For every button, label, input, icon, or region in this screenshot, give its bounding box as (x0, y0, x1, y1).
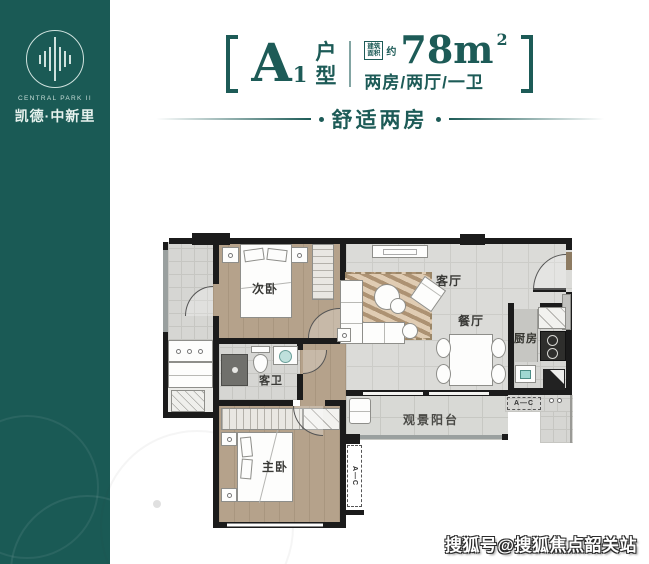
coffee-table (390, 298, 406, 314)
ac-outdoor-box: A—C (507, 397, 541, 410)
area-note: 建筑 面积 (364, 41, 383, 60)
wardrobe (221, 408, 303, 430)
wardrobe (312, 244, 334, 300)
room-label-balcony: 观景阳台 (396, 411, 466, 428)
area-approx: 约 (386, 43, 396, 58)
basin-icon (279, 350, 292, 363)
wall (213, 400, 293, 406)
washer (171, 390, 205, 412)
spec-text: 两房/两厅/一卫 (364, 68, 507, 93)
unit-number: 1 (293, 64, 308, 85)
kitchen-sink (538, 307, 566, 329)
room-label-dining: 餐厅 (455, 312, 487, 329)
wall (340, 434, 360, 444)
wall (460, 234, 485, 245)
room-label-living: 客厅 (433, 272, 465, 289)
wall (163, 412, 219, 418)
tagline-dot (436, 117, 441, 122)
washing-machine (515, 365, 536, 383)
wall (213, 412, 219, 528)
sliding-door-panel (363, 392, 423, 395)
appliance-door-icon (520, 370, 531, 379)
sliding-door-panel (429, 392, 489, 395)
area-exponent: 2 (496, 32, 507, 48)
unit-word-bottom: 型 (315, 65, 336, 89)
entry-door-frame (566, 252, 572, 270)
dining-chair (491, 364, 506, 384)
tagline-line-left (156, 118, 311, 120)
dining-chair (436, 338, 451, 358)
wall (213, 338, 346, 344)
wall (163, 242, 168, 250)
poster-page: CENTRAL PARK II 凯德·中新里 A 1 户 型 建筑 面积 约 7… (0, 0, 649, 564)
wall (502, 434, 508, 440)
sofa (362, 322, 405, 344)
nightstand (221, 432, 237, 446)
wall (192, 233, 230, 245)
unit-word-top: 户 (315, 41, 336, 65)
bracket-left-icon (226, 35, 238, 93)
stove (540, 331, 566, 361)
unit-letter: A (251, 42, 291, 86)
room-label-bedroom2: 次卧 (237, 280, 293, 297)
bath-sink (273, 346, 298, 365)
shower (221, 354, 248, 386)
area-group: 建筑 面积 约 78m 2 两房/两厅/一卫 (364, 34, 507, 93)
window-rail (163, 242, 168, 340)
header-divider (349, 41, 351, 87)
floor-ac-platform (540, 412, 573, 443)
balcony-rail (346, 435, 508, 439)
bracket-right-icon (521, 35, 533, 93)
tagline: 舒适两房 (332, 104, 428, 134)
side-table (337, 328, 351, 342)
laundry-cabinet (168, 362, 213, 388)
window (227, 523, 323, 527)
logo-en-text: CENTRAL PARK II (0, 95, 110, 102)
toilet-tank (251, 346, 270, 353)
ac-closet-box: A—C (347, 445, 362, 507)
balcony-cabinet (349, 398, 371, 424)
platform-edge (570, 395, 572, 443)
logo-mark-icon (26, 30, 84, 88)
drain-icon (549, 398, 554, 403)
tv-console (372, 245, 428, 258)
stool (402, 323, 418, 339)
drain-icon (557, 398, 562, 403)
tagline-line-right (449, 118, 604, 120)
brand-logo: CENTRAL PARK II 凯德·中新里 (0, 30, 110, 126)
room-label-master: 主卧 (251, 458, 299, 475)
room-label-bath: 客卫 (247, 372, 295, 388)
floorplan: 次卧 客卫 主卧 (163, 228, 575, 540)
tagline-row: 舒适两房 (110, 104, 649, 134)
nightstand (291, 247, 308, 263)
wall (163, 332, 168, 340)
dining-chair (491, 338, 506, 358)
wall (566, 244, 572, 250)
area-value: 78m (400, 34, 493, 66)
corner-cabinet (543, 369, 565, 390)
wall (340, 510, 364, 515)
tagline-dot (319, 117, 324, 122)
laundry-cabinet (168, 340, 213, 362)
wall (340, 400, 346, 528)
tv-icon (383, 249, 417, 255)
pillow (243, 248, 264, 263)
pillow (240, 436, 253, 457)
wall (213, 238, 219, 284)
wall (297, 374, 303, 400)
pillow (266, 248, 287, 262)
logo-cn-text: 凯德·中新里 (0, 106, 110, 126)
wall (325, 400, 346, 406)
unit-header: A 1 户 型 建筑 面积 约 78m 2 两房/两厅/一卫 (110, 34, 649, 93)
dining-chair (436, 364, 451, 384)
room-label-kitchen: 厨房 (510, 330, 542, 346)
nightstand (222, 247, 239, 263)
corner-cabinet-face (550, 370, 564, 384)
decor-dot (153, 500, 161, 508)
shower-head-icon (232, 367, 238, 373)
unit-title: A 1 户 型 (251, 41, 336, 86)
brand-band: CENTRAL PARK II 凯德·中新里 (0, 0, 110, 564)
nightstand (221, 488, 237, 502)
watermark: 搜狐号@搜狐焦点韶关站 (445, 531, 637, 556)
dining-table (449, 334, 493, 386)
